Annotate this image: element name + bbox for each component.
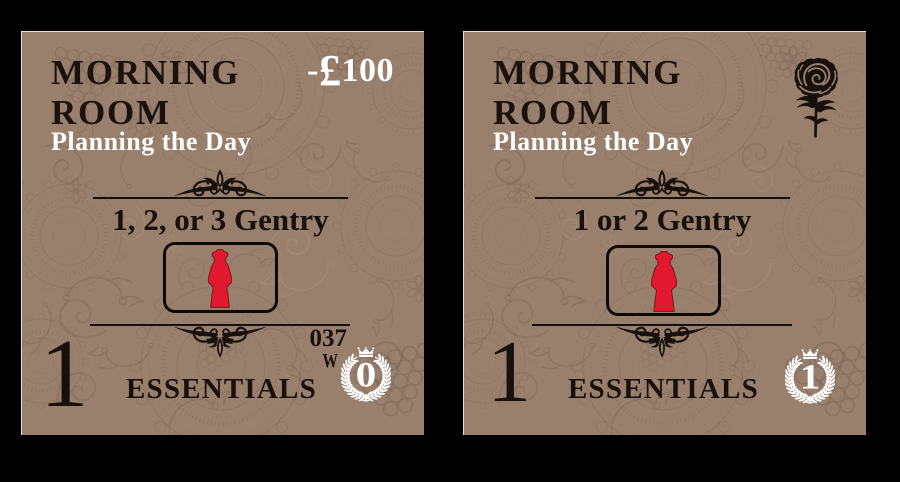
svg-text:0: 0	[356, 356, 377, 395]
svg-text:1: 1	[800, 358, 821, 397]
